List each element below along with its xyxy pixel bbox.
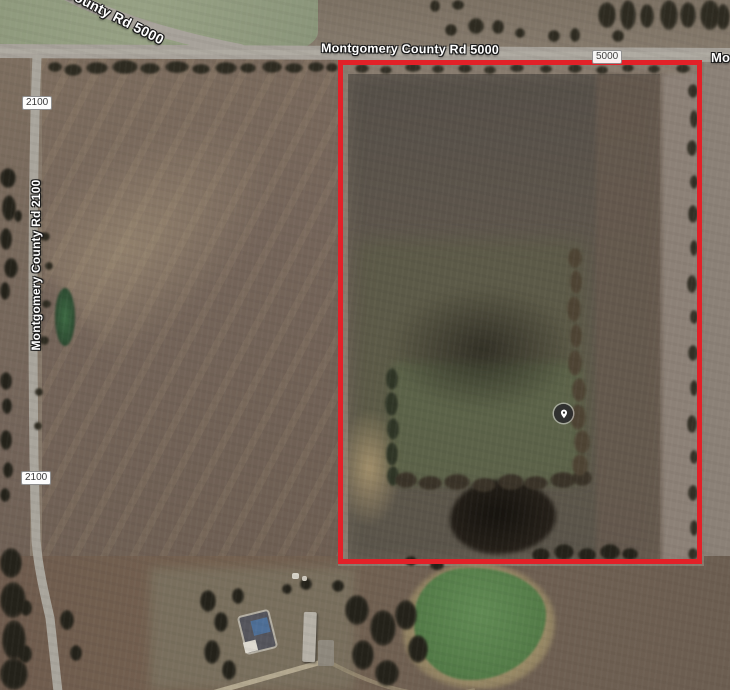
tree-cluster: [45, 262, 53, 270]
route-badge-2100-lower: 2100: [21, 471, 51, 485]
tree-cluster: [86, 62, 108, 74]
tree-cluster: [48, 62, 62, 72]
tree-cluster: [70, 645, 82, 661]
road-label-montgomery-county-rd-5000: Montgomery County Rd 5000: [321, 41, 499, 57]
tree-cluster: [34, 422, 42, 430]
tree-cluster: [370, 610, 396, 646]
tree-cluster: [640, 4, 654, 28]
road-label-montgomery-county-rd-2100: Montgomery County Rd 2100: [29, 179, 43, 350]
tree-cluster: [240, 63, 256, 73]
road-label-clipped-right: Mo: [711, 50, 730, 65]
tree-cluster: [0, 430, 12, 450]
tree-cluster: [285, 63, 303, 73]
tree-cluster: [408, 635, 428, 663]
location-marker[interactable]: [554, 404, 573, 423]
tree-cluster: [20, 600, 32, 616]
tree-cluster: [0, 228, 12, 250]
tree-cluster: [468, 18, 484, 34]
tree-cluster: [445, 24, 457, 36]
barn: [302, 612, 317, 662]
tree-cluster: [204, 640, 220, 664]
tree-cluster: [14, 210, 22, 222]
shed: [318, 640, 334, 666]
tree-cluster: [660, 0, 678, 30]
tree-cluster: [0, 372, 12, 390]
tree-cluster: [42, 300, 51, 308]
tree-cluster: [375, 660, 399, 686]
tree-cluster: [0, 282, 10, 300]
tree-cluster: [222, 660, 236, 680]
tree-cluster: [612, 30, 624, 42]
tree-cluster: [2, 398, 12, 414]
tree-cluster: [18, 645, 32, 663]
tree-cluster: [598, 2, 616, 28]
tree-cluster: [308, 62, 324, 72]
tree-cluster: [3, 462, 13, 478]
road-2100-vertical: [33, 55, 58, 690]
tree-cluster: [262, 61, 282, 73]
outbuilding: [292, 573, 299, 579]
route-badge-2100-upper: 2100: [22, 96, 52, 110]
tree-cluster: [282, 584, 292, 594]
tree-cluster: [112, 60, 138, 74]
tree-cluster: [64, 64, 82, 76]
tree-cluster: [192, 64, 210, 74]
tree-cluster: [232, 588, 244, 604]
tree-cluster: [35, 388, 43, 396]
tree-cluster: [0, 548, 22, 578]
tree-cluster: [515, 28, 525, 38]
tree-cluster: [620, 0, 636, 30]
farm-trail: [325, 660, 475, 690]
tree-cluster: [716, 4, 730, 30]
tree-cluster: [140, 63, 160, 74]
tree-cluster: [0, 488, 10, 502]
tree-cluster: [570, 28, 580, 42]
tree-cluster: [332, 580, 344, 592]
tree-cluster: [165, 61, 189, 73]
tree-cluster: [395, 600, 417, 630]
tree-cluster: [345, 595, 369, 625]
tree-cluster: [215, 62, 237, 74]
tree-cluster: [200, 590, 216, 612]
satellite-map-canvas[interactable]: County Rd 5000 Montgomery County Rd 5000…: [0, 0, 730, 690]
route-badge-5000: 5000: [592, 50, 622, 64]
tree-cluster: [60, 610, 74, 630]
tree-cluster: [0, 168, 16, 188]
location-pin-icon: [558, 408, 570, 420]
tree-cluster: [680, 2, 696, 28]
tree-cluster: [4, 258, 18, 278]
tree-cluster: [452, 0, 464, 10]
tree-cluster: [352, 640, 374, 670]
parcel-outline: [338, 60, 702, 564]
tree-cluster: [492, 20, 504, 34]
tree-cluster: [430, 0, 440, 12]
tree-cluster: [326, 63, 338, 72]
tree-cluster: [548, 30, 560, 42]
tree-cluster: [214, 612, 228, 632]
outbuilding-small: [302, 576, 307, 581]
